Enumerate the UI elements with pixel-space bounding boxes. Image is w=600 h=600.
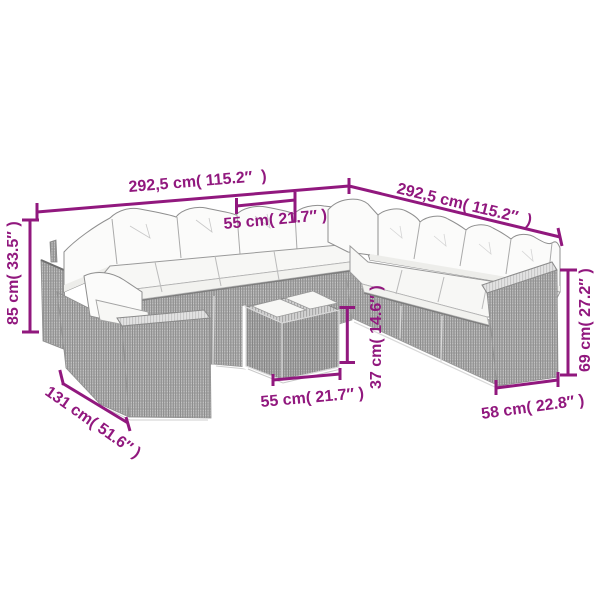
svg-text:69 cm( 27.2″ ): 69 cm( 27.2″ ) (577, 268, 594, 372)
svg-text:85 cm( 33.5″ ): 85 cm( 33.5″ ) (5, 221, 22, 325)
svg-text:37 cm( 14.6″ ): 37 cm( 14.6″ ) (368, 285, 385, 389)
